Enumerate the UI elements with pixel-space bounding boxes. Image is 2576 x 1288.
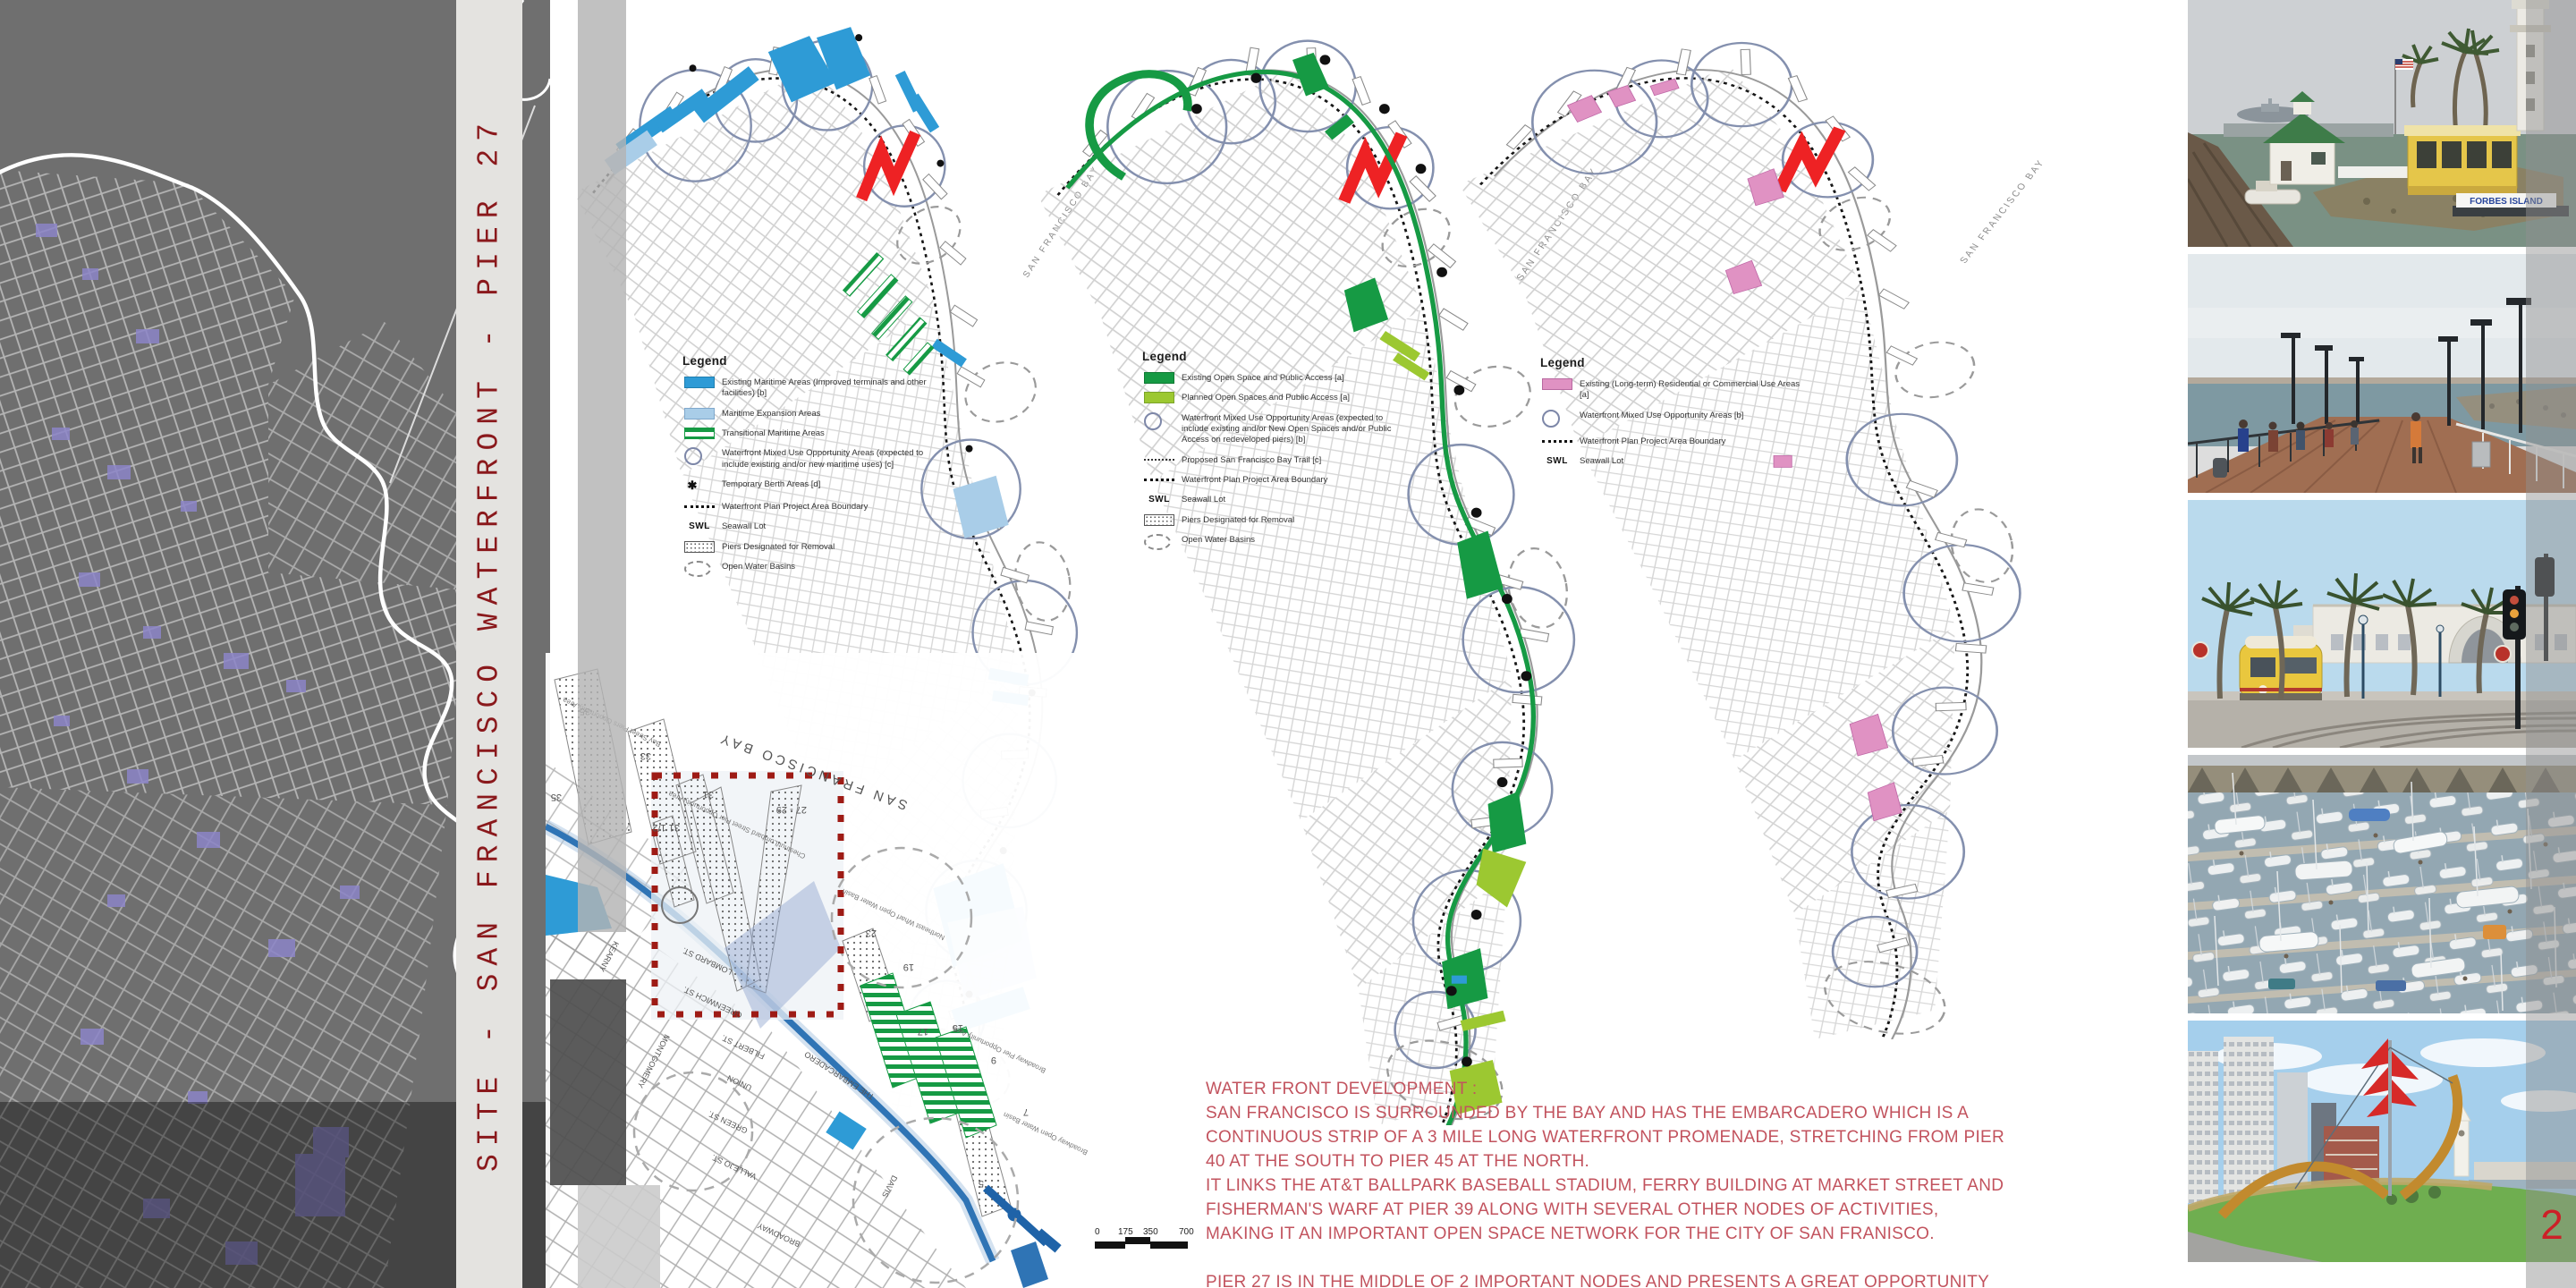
legend-swatch-icon — [1144, 372, 1174, 384]
legend-item-label: Waterfront Plan Project Area Boundary — [722, 501, 868, 513]
legend-item-label: Open Water Basins — [722, 561, 795, 572]
legend-swatch-icon — [684, 428, 715, 439]
legend-item-label: Waterfront Mixed Use Opportunity Areas (… — [1182, 412, 1411, 446]
svg-text:5: 5 — [979, 1178, 984, 1189]
legend-item: Existing Open Space and Public Access [a… — [1142, 372, 1411, 384]
legend-item-label: Waterfront Plan Project Area Boundary — [1580, 436, 1725, 447]
legend-item: Planned Open Spaces and Public Access [a… — [1142, 392, 1411, 403]
legend-item-label: Seawall Lot — [722, 521, 766, 532]
legend-item: Existing (Long-term) Residential or Comm… — [1540, 378, 1809, 402]
legend-item: Proposed San Francisco Bay Trail [c] — [1142, 454, 1411, 466]
legend-swatch-icon — [1144, 534, 1171, 550]
legend-item: Existing Maritime Areas (Improved termin… — [682, 377, 951, 400]
svg-text:700: 700 — [1179, 1227, 1194, 1237]
svg-text:175: 175 — [1118, 1227, 1133, 1237]
legend-item: SWL Seawall Lot — [1540, 455, 1809, 467]
svg-text:7: 7 — [1023, 1106, 1029, 1117]
legend-item-label: Piers Designated for Removal — [1182, 514, 1294, 526]
legend-item: Waterfront Mixed Use Opportunity Areas [… — [1540, 410, 1809, 428]
map-residential-commercial-plan — [1429, 5, 2050, 1039]
collage-strip-vertical — [578, 0, 626, 932]
photo-forbes-island: FORBES ISLAND — [2188, 0, 2576, 247]
legend-item-label: Waterfront Mixed Use Opportunity Areas (… — [722, 447, 951, 470]
seawall-supports — [2188, 767, 2560, 792]
legend-swatch-icon — [1542, 378, 1572, 390]
scale-bar: 0 175 350 700 — [1093, 1225, 1197, 1254]
legend-swatch-icon — [1144, 459, 1174, 461]
description-paragraph: IT LINKS THE AT&T BALLPARK BASEBALL STAD… — [1206, 1174, 2011, 1247]
right-edge-strip — [2526, 0, 2576, 1288]
legend-swatch-icon: SWL — [1144, 494, 1174, 505]
legend-item-label: Transitional Maritime Areas — [722, 428, 825, 439]
svg-text:0: 0 — [1095, 1227, 1100, 1237]
legend-item-label: Seawall Lot — [1580, 455, 1623, 467]
photo-fishing-pier — [2188, 254, 2576, 493]
legend-item: Piers Designated for Removal — [1142, 514, 1411, 526]
legend-swatch-icon — [1144, 514, 1174, 526]
legend-item-label: Seawall Lot — [1182, 494, 1225, 505]
legend-swatch-icon — [1144, 479, 1174, 481]
legend-swatch-icon: SWL — [684, 521, 715, 532]
legend-title: Legend — [682, 354, 951, 368]
svg-text:23: 23 — [866, 928, 877, 938]
legend-item: SWL Seawall Lot — [682, 521, 951, 532]
photo-cupids-span — [2188, 1021, 2576, 1262]
svg-text:31 1/2: 31 1/2 — [652, 822, 680, 833]
collage-strip-bottom — [578, 1185, 660, 1288]
svg-text:27 - 29: 27 - 29 — [776, 804, 807, 815]
legend-item-label: Proposed San Francisco Bay Trail [c] — [1182, 454, 1321, 466]
legend-swatch-icon — [684, 541, 715, 553]
legend-item: Transitional Maritime Areas — [682, 428, 951, 439]
presentation-board: SAN FRANCISCO BAY — [0, 0, 2576, 1288]
title-strip: SITE - SAN FRANCISCO WATERFRONT - PIER 2… — [456, 0, 522, 1288]
legend-swatch-icon — [1144, 412, 1162, 430]
legend-item-label: Open Water Basins — [1182, 534, 1255, 546]
svg-text:31: 31 — [703, 789, 714, 800]
legend-item-label: Existing Maritime Areas (Improved termin… — [722, 377, 951, 400]
legend-swatch-icon: SWL — [1542, 455, 1572, 467]
svg-text:350: 350 — [1143, 1227, 1158, 1237]
legend-item: Waterfront Mixed Use Opportunity Areas (… — [1142, 412, 1411, 446]
collage-block-dark — [550, 979, 626, 1185]
legend-swatch-icon — [684, 377, 715, 388]
legend-item: Waterfront Plan Project Area Boundary — [1540, 436, 1809, 447]
legend-item-label: Piers Designated for Removal — [722, 541, 835, 553]
legend-swatch-icon — [1542, 440, 1572, 443]
legend-swatch-icon: ✱ — [684, 479, 700, 493]
legend-swatch-icon — [1144, 392, 1174, 403]
legend-open-space: Legend Existing Open Space and Public Ac… — [1142, 350, 1411, 558]
legend-title: Legend — [1540, 356, 1809, 369]
photo-marina — [2188, 755, 2576, 1013]
legend-item: Waterfront Plan Project Area Boundary — [1142, 474, 1411, 486]
legend-swatch-icon — [1542, 410, 1560, 428]
legend-item-label: Existing Open Space and Public Access [a… — [1182, 372, 1344, 384]
legend-item: Open Water Basins — [682, 561, 951, 577]
page-title: SITE - SAN FRANCISCO WATERFRONT - PIER 2… — [456, 0, 522, 1288]
legend-item: Open Water Basins — [1142, 534, 1411, 550]
legend-item: Waterfront Plan Project Area Boundary — [682, 501, 951, 513]
legend-item-label: Maritime Expansion Areas — [722, 408, 820, 419]
legend-swatch-icon — [684, 505, 715, 508]
description-paragraph: PIER 27 IS IN THE MIDDLE OF 2 IMPORTANT … — [1206, 1271, 2011, 1288]
legend-title: Legend — [1142, 350, 1411, 363]
description-paragraph: WATER FRONT DEVELOPMENT : — [1206, 1078, 2011, 1102]
waterfront-development-text: WATER FRONT DEVELOPMENT :SAN FRANCISCO I… — [1206, 1078, 2011, 1288]
svg-text:19: 19 — [903, 962, 914, 972]
svg-text:9: 9 — [991, 1055, 996, 1065]
legend-item-label: Temporary Berth Areas [d] — [722, 479, 820, 490]
photo-embarcadero-streetcar — [2188, 500, 2576, 748]
description-paragraph: SAN FRANCISCO IS SURROUNDED BY THE BAY A… — [1206, 1102, 2011, 1174]
legend-item: Piers Designated for Removal — [682, 541, 951, 553]
legend-item-label: Waterfront Mixed Use Opportunity Areas [… — [1580, 410, 1743, 421]
legend-residential: Legend Existing (Long-term) Residential … — [1540, 356, 1809, 475]
legend-item: Maritime Expansion Areas — [682, 408, 951, 419]
legend-item: Waterfront Mixed Use Opportunity Areas (… — [682, 447, 951, 470]
svg-text:33: 33 — [640, 750, 651, 761]
svg-text:17: 17 — [918, 1026, 928, 1037]
legend-item: ✱ Temporary Berth Areas [d] — [682, 479, 951, 493]
legend-item-label: Existing (Long-term) Residential or Comm… — [1580, 378, 1809, 402]
legend-swatch-icon — [684, 561, 711, 577]
page-number: 2 — [2531, 1200, 2572, 1249]
legend-swatch-icon — [684, 408, 715, 419]
svg-text:35: 35 — [551, 792, 562, 802]
svg-text:15: 15 — [953, 1022, 963, 1033]
legend-item-label: Planned Open Spaces and Public Access [a… — [1182, 392, 1350, 403]
legend-item-label: Waterfront Plan Project Area Boundary — [1182, 474, 1327, 486]
legend-maritime: Legend Existing Maritime Areas (Improved… — [682, 354, 951, 585]
legend-item: SWL Seawall Lot — [1142, 494, 1411, 505]
legend-swatch-icon — [684, 447, 702, 465]
